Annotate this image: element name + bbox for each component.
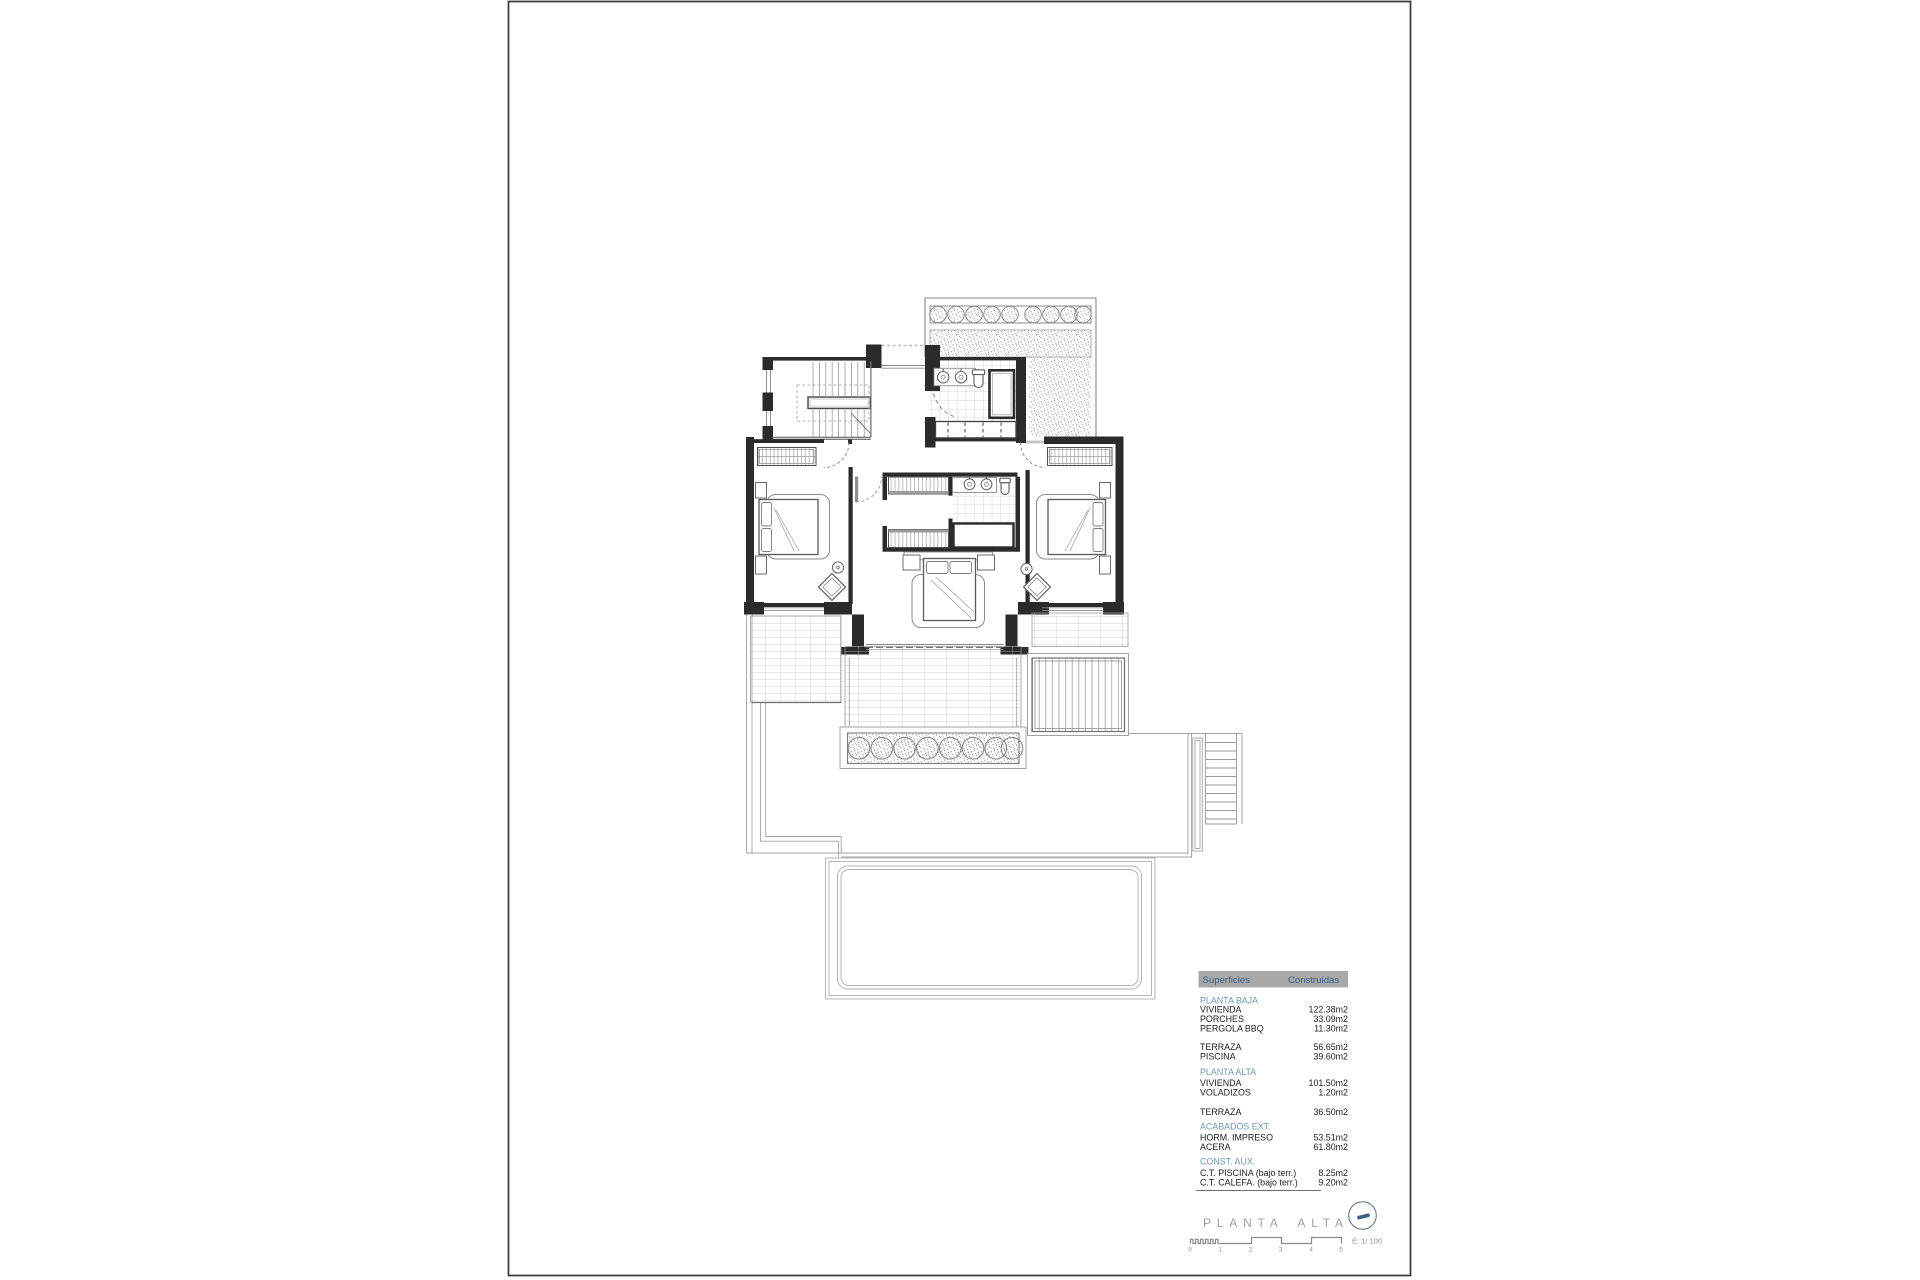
svg-text:PLANTA ALTA: PLANTA ALTA — [1200, 1067, 1256, 1077]
svg-text:Construidas: Construidas — [1288, 975, 1339, 986]
svg-text:101.50m2: 101.50m2 — [1309, 1078, 1349, 1088]
svg-text:61.80m2: 61.80m2 — [1313, 1142, 1348, 1152]
svg-text:1.20m2: 1.20m2 — [1318, 1088, 1348, 1098]
svg-text:122.38m2: 122.38m2 — [1309, 1005, 1349, 1015]
svg-text:39.60m2: 39.60m2 — [1313, 1052, 1348, 1062]
svg-text:36.50m2: 36.50m2 — [1313, 1107, 1348, 1117]
svg-text:PISCINA: PISCINA — [1200, 1052, 1236, 1062]
svg-text:TERRAZA: TERRAZA — [1200, 1042, 1242, 1052]
svg-text:Superficies: Superficies — [1203, 975, 1251, 986]
svg-text:PORCHES: PORCHES — [1200, 1014, 1244, 1024]
svg-text:56.65m2: 56.65m2 — [1313, 1042, 1348, 1052]
svg-text:C.T. PISCINA (bajo terr.): C.T. PISCINA (bajo terr.) — [1200, 1168, 1296, 1178]
svg-text:ACERA: ACERA — [1200, 1142, 1231, 1152]
svg-text:8.25m2: 8.25m2 — [1318, 1168, 1348, 1178]
svg-text:ACABADOS EXT.: ACABADOS EXT. — [1200, 1122, 1271, 1132]
svg-text:HORM. IMPRESO: HORM. IMPRESO — [1200, 1133, 1273, 1143]
svg-text:PLANTA ALTA: PLANTA ALTA — [1203, 1216, 1349, 1230]
svg-text:33.09m2: 33.09m2 — [1313, 1014, 1348, 1024]
svg-text:VIVIENDA: VIVIENDA — [1200, 1078, 1242, 1088]
svg-text:VOLADIZOS: VOLADIZOS — [1200, 1088, 1251, 1098]
svg-text:CONST. AUX.: CONST. AUX. — [1200, 1157, 1255, 1167]
svg-text:53.51m2: 53.51m2 — [1313, 1133, 1348, 1143]
svg-text:11.30m2: 11.30m2 — [1314, 1024, 1348, 1034]
svg-text:9.20m2: 9.20m2 — [1318, 1178, 1348, 1188]
svg-text:E: 1/ 100: E: 1/ 100 — [1352, 1237, 1382, 1246]
svg-text:VIVIENDA: VIVIENDA — [1200, 1005, 1242, 1015]
svg-text:C.T. CALEFA. (bajo terr.): C.T. CALEFA. (bajo terr.) — [1200, 1178, 1298, 1188]
svg-text:TERRAZA: TERRAZA — [1200, 1107, 1242, 1117]
svg-text:PERGOLA BBQ: PERGOLA BBQ — [1200, 1024, 1264, 1034]
